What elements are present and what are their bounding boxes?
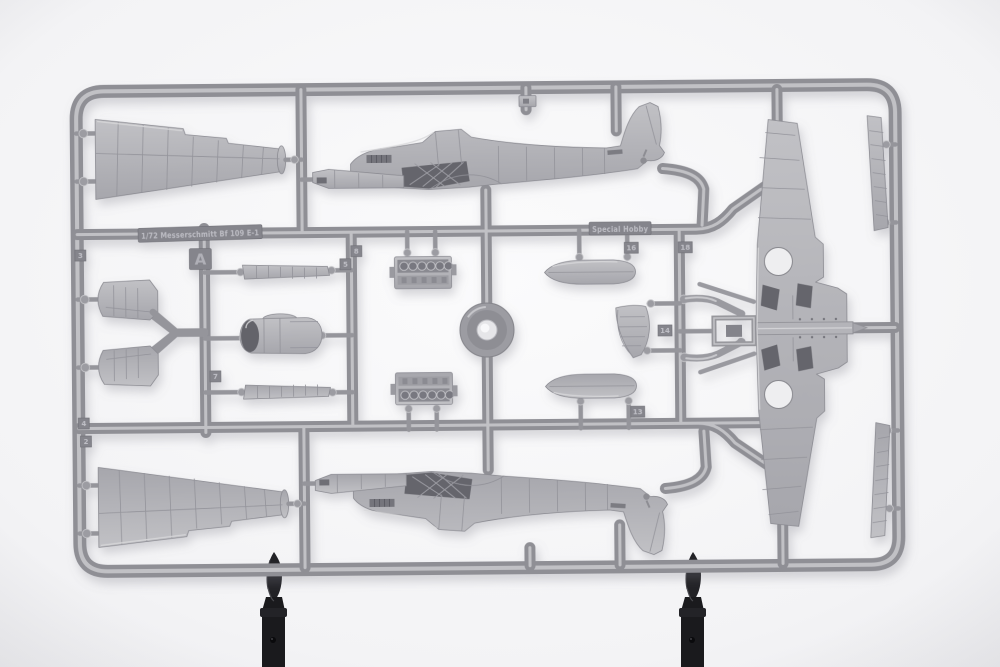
brand-text: Special Hobby [592,225,649,234]
svg-text:8: 8 [354,248,359,256]
part-number-tag: 3 [75,250,86,261]
frame-letter-tag: A [189,248,211,269]
frame-letter-text: A [194,250,206,268]
svg-text:5: 5 [343,261,348,269]
svg-text:18: 18 [680,244,690,252]
part-number-tag: 18 [678,242,692,253]
part-number-tag: 5 [340,259,351,270]
part-number-tag: 13 [631,406,645,417]
brand-tag: Special Hobby [589,222,651,236]
svg-text:3: 3 [78,252,83,260]
part-number-tag: 8 [351,246,362,257]
svg-text:13: 13 [633,408,643,416]
svg-text:14: 14 [660,327,670,335]
stabilizer [98,280,158,321]
svg-text:7: 7 [213,373,218,381]
part-number-tag: 7 [210,371,221,382]
svg-text:16: 16 [626,244,636,252]
part-number-tag: 14 [658,325,672,336]
part-number-tag: 2 [80,436,91,447]
sprue-photo-canvas: 1/72 Messerschmitt Bf 109 E-1 Special Ho… [0,0,1000,667]
part-number-tag: 16 [624,242,638,253]
svg-text:2: 2 [83,438,88,446]
main-wheel [460,303,514,357]
svg-text:4: 4 [81,420,86,428]
photo-model-kit-sprue: 1/72 Messerschmitt Bf 109 E-1 Special Ho… [0,0,1000,667]
part-number-tag: 4 [78,418,89,429]
